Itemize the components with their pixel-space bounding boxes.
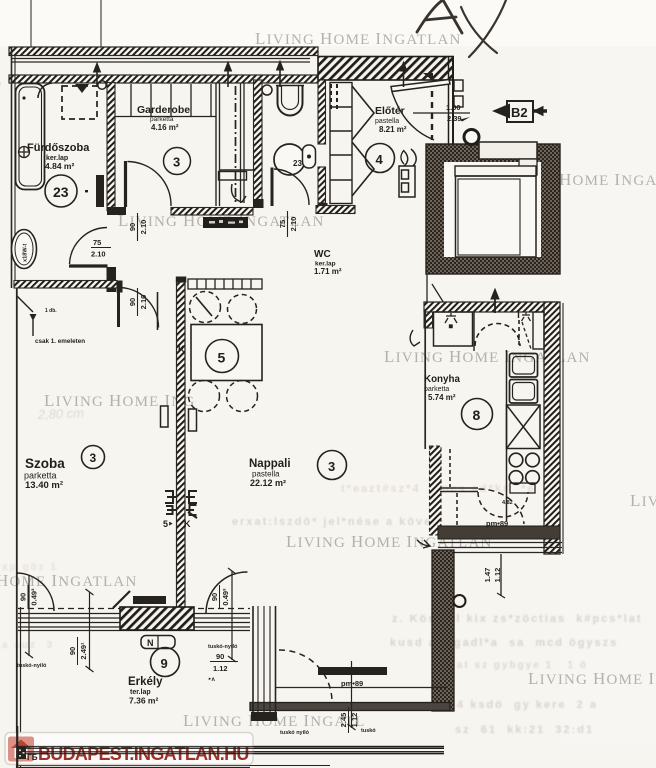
svg-text:Szoba: Szoba [25,456,65,471]
svg-text:5: 5 [218,350,226,366]
svg-text:7.36 m²: 7.36 m² [129,696,158,706]
svg-text:LIVING HOME ING: LIVING HOME ING [44,391,195,410]
svg-text:5‣: 5‣ [163,519,173,529]
svg-text:1.47: 1.47 [483,568,492,583]
svg-text:3: 3 [173,155,180,170]
svg-text:9: 9 [161,656,168,671]
svg-text:4.82: 4.82 [502,500,513,506]
svg-text:2.49¹: 2.49¹ [79,642,88,660]
svg-text:LIVING HOME ING: LIVING HOME ING [528,669,656,688]
svg-text:parketta: parketta [24,471,57,481]
svg-text:tuskó: tuskó [361,728,376,734]
svg-text:B2: B2 [511,105,528,120]
svg-text:3: 3 [90,451,97,465]
svg-text:1 db.: 1 db. [45,308,57,314]
svg-text:pastella: pastella [375,118,399,125]
svg-text:4 ksdö gy kere 2 a: 4 ksdö gy kere 2 a [452,699,598,711]
svg-text:75: 75 [278,220,287,228]
svg-text:pm•89: pm•89 [486,519,508,528]
svg-text:z. Kösv*tl kix zs*zöctias k#p: z. Kösv*tl kix zs*zöctias k#pcs*lat [392,613,643,625]
svg-text:0.49³: 0.49³ [221,588,230,606]
svg-text:13.40 m²: 13.40 m² [25,480,63,491]
svg-text:kusd a f*gadl*a sa mcd ögysz: kusd a f*gadl*a sa mcd ögyszs [390,637,618,649]
svg-text:K: K [184,519,191,529]
svg-text:erxat:lszdö* jel*nése a követ: erxat:lszdö* jel*nése a követ [232,516,438,528]
svg-text:2.45: 2.45 [339,713,348,728]
svg-text:Garderobe: Garderobe [137,104,190,116]
svg-text:75: 75 [93,238,101,247]
svg-text:2.10: 2.10 [139,220,148,235]
svg-text:90: 90 [68,647,77,655]
svg-text:8.21 m²: 8.21 m² [379,125,407,134]
svg-text:xp göz 1: xp göz 1 [2,562,58,573]
svg-text:1.12: 1.12 [350,713,359,728]
svg-text:a suz 3: a suz 3 [2,640,54,651]
svg-text:90: 90 [210,593,219,601]
svg-text:Fürdőszoba: Fürdőszoba [27,142,90,154]
svg-text:parketta: parketta [150,116,174,123]
svg-text:Nappali: Nappali [249,458,291,470]
svg-text:lat sz gybgye 1 1 ö: lat sz gybgye 1 1 ö [452,660,588,671]
svg-text:E: E [0,73,2,89]
svg-text:1.71 m²: 1.71 m² [314,267,342,276]
svg-text:4.16 m²: 4.16 m² [151,123,179,132]
svg-text:5.74 m²: 5.74 m² [428,393,456,402]
svg-text:2.10: 2.10 [289,217,298,232]
svg-text:csak 1. emeleten: csak 1. emeleten [35,338,85,345]
svg-text:Erkély: Erkély [128,676,163,688]
svg-text:pm•89: pm•89 [341,679,363,688]
svg-text:90: 90 [19,593,28,601]
svg-text:3: 3 [328,459,335,474]
svg-text:22.12 m²: 22.12 m² [250,478,286,488]
svg-text:LIVING HOME INGATLAN: LIVING HOME INGATLAN [255,29,462,48]
svg-text:0.49³: 0.49³ [30,588,39,606]
svg-text:‣ʌ: ‣ʌ [208,677,216,683]
svg-text:1.12: 1.12 [213,664,228,673]
svg-text:2.10: 2.10 [91,250,106,259]
svg-text:tuskó-nyiló: tuskó-nyiló [17,663,47,669]
svg-text:8: 8 [473,407,481,423]
svg-text:2.39: 2.39 [447,114,462,123]
svg-text:x18W-t: x18W-t [23,244,29,262]
svg-text:90: 90 [128,223,137,231]
svg-text:parketta: parketta [424,386,449,393]
svg-text:K: K [178,344,185,354]
svg-text:N: N [147,638,154,648]
svg-text:4.84 m²: 4.84 m² [45,161,74,171]
svg-text:4: 4 [376,152,384,167]
svg-text:tuskó-nyiló: tuskó-nyiló [208,644,238,650]
svg-text:LIV: LIV [630,491,656,510]
svg-text:1.12: 1.12 [493,568,502,583]
svg-text:90: 90 [216,652,224,661]
svg-text:90: 90 [128,298,137,306]
svg-text:23: 23 [53,184,69,200]
svg-text:WC: WC [314,249,331,260]
svg-text:tuskó nyiló: tuskó nyiló [280,730,310,736]
svg-text:1.00: 1.00 [446,103,461,112]
svg-text:23: 23 [293,159,302,168]
svg-text:sz 61 kk:21 32:d1: sz 61 kk:21 32:d1 [455,724,594,736]
svg-text:ΓБ: ΓБ [27,753,38,762]
svg-text:Konyha: Konyha [424,374,460,385]
